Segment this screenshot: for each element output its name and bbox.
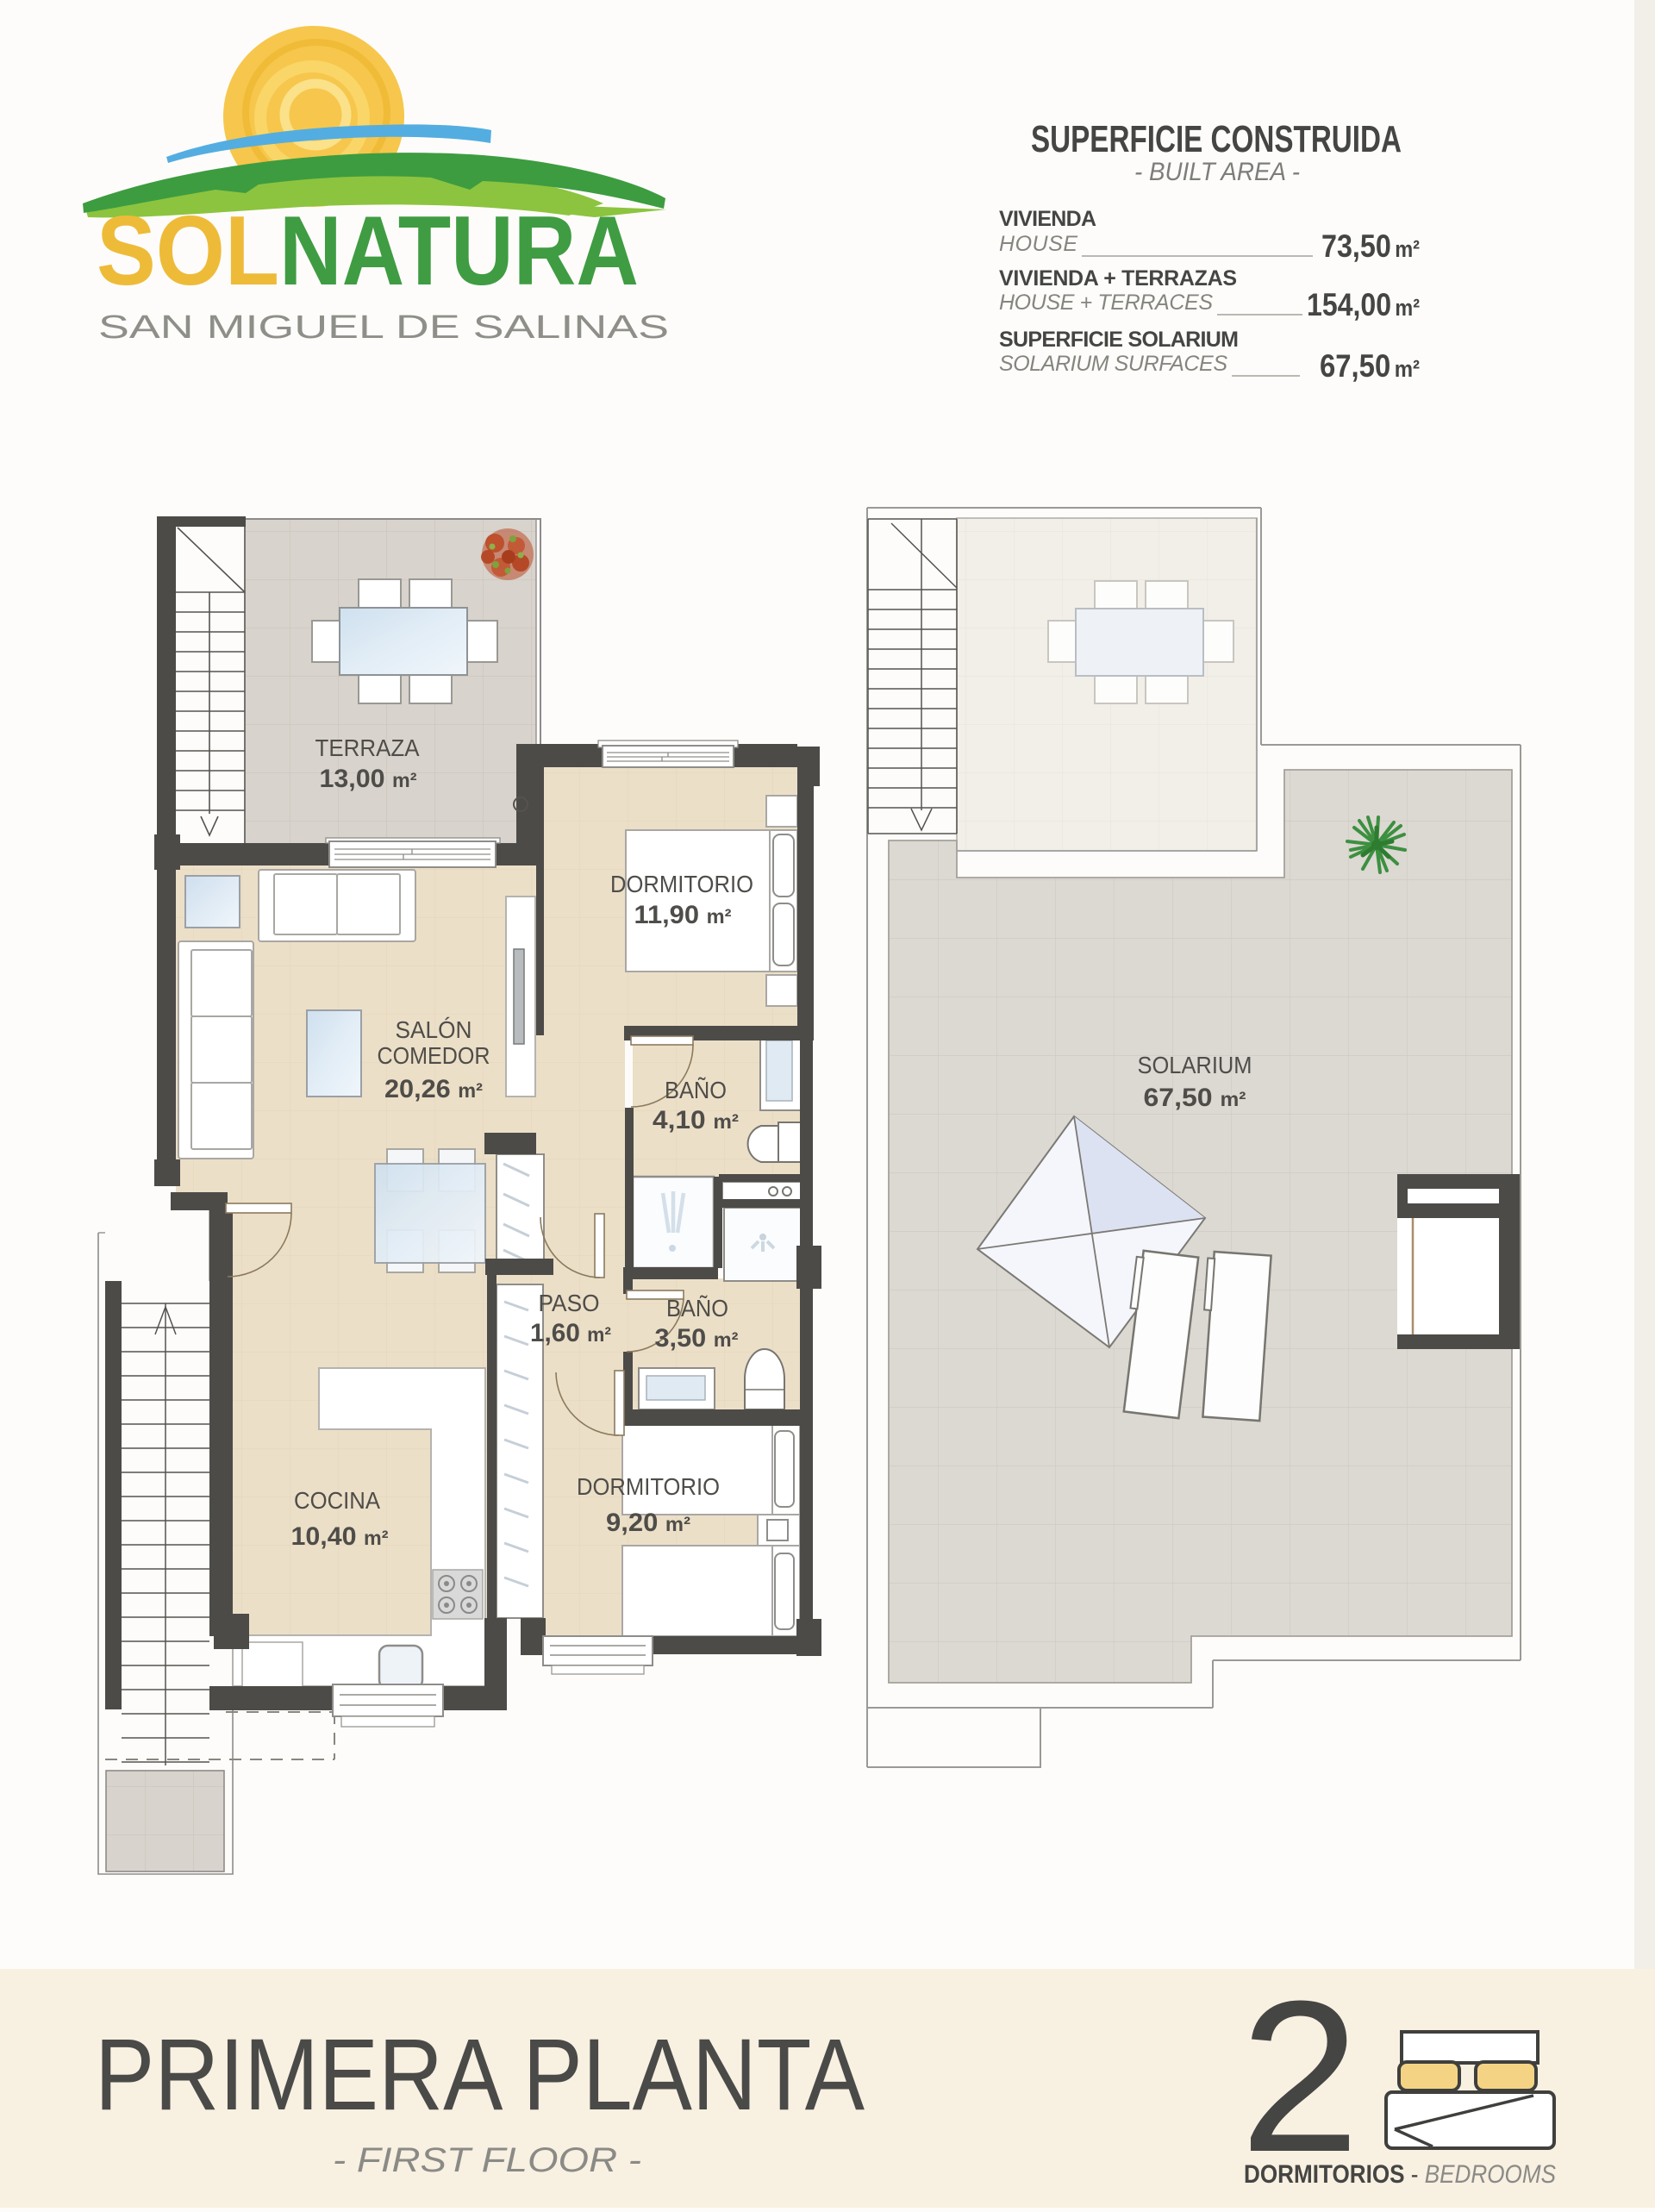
svg-text:3,50 m²: 3,50 m² [655,1324,739,1353]
svg-text:SOLARIUM: SOLARIUM [1138,1052,1252,1078]
svg-text:HOUSE + TERRACES: HOUSE + TERRACES [999,291,1213,315]
svg-text:VIVIENDA + TERRAZAS: VIVIENDA + TERRAZAS [999,266,1237,291]
svg-text:DORMITORIO: DORMITORIO [577,1473,720,1500]
svg-text:SOL: SOL [97,197,279,306]
svg-text:10,40 m²: 10,40 m² [291,1522,389,1551]
svg-text:9,20 m²: 9,20 m² [606,1509,690,1537]
svg-text:SUPERFICIE SOLARIUM: SUPERFICIE SOLARIUM [999,328,1239,352]
svg-text:SUPERFICIE CONSTRUIDA: SUPERFICIE CONSTRUIDA [1031,118,1402,160]
svg-text:SALÓN: SALÓN [396,1016,472,1043]
svg-text:DORMITORIO: DORMITORIO [610,871,753,897]
svg-text:HOUSE: HOUSE [999,232,1077,256]
svg-text:COCINA: COCINA [294,1487,380,1514]
svg-text:11,90 m²: 11,90 m² [634,901,732,929]
svg-text:1,60 m²: 1,60 m² [530,1319,611,1347]
svg-text:20,26 m²: 20,26 m² [384,1075,483,1103]
svg-text:DORMITORIOS - BEDROOMS: DORMITORIOS - BEDROOMS [1244,2160,1556,2189]
svg-text:TERRAZA: TERRAZA [315,734,420,761]
svg-text:SOLARIUM SURFACES: SOLARIUM SURFACES [999,352,1227,376]
svg-text:- BUILT AREA -: - BUILT AREA - [1134,158,1300,186]
svg-text:COMEDOR: COMEDOR [378,1042,490,1069]
svg-text:4,10 m²: 4,10 m² [653,1106,739,1134]
svg-text:NATURA: NATURA [279,197,639,306]
svg-text:13,00 m²: 13,00 m² [320,765,417,793]
svg-text:PRIMERA PLANTA: PRIMERA PLANTA [95,2018,865,2132]
svg-text:BAÑO: BAÑO [666,1295,728,1322]
svg-text:- FIRST FLOOR -: - FIRST FLOOR - [333,2141,641,2179]
svg-text:BAÑO: BAÑO [665,1077,727,1103]
svg-text:PASO: PASO [539,1290,600,1316]
svg-text:67,50 m²: 67,50 m² [1144,1084,1246,1112]
svg-text:VIVIENDA: VIVIENDA [999,207,1096,231]
svg-text:SAN MIGUEL DE SALINAS: SAN MIGUEL DE SALINAS [98,309,669,346]
